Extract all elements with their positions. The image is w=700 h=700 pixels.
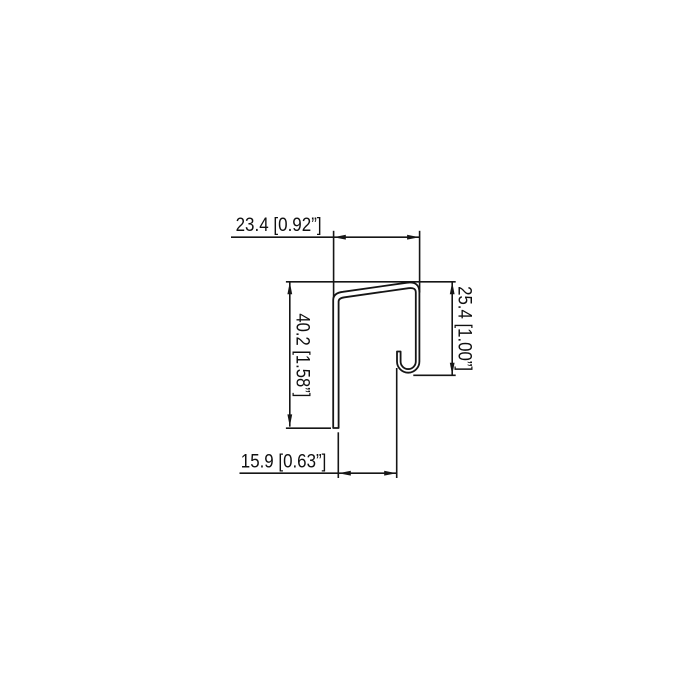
- svg-text:40.2 [1.58”]: 40.2 [1.58”]: [292, 313, 313, 397]
- svg-text:25.4 [1.00”]: 25.4 [1.00”]: [454, 286, 475, 371]
- svg-text:23.4 [0.92”]: 23.4 [0.92”]: [236, 215, 322, 236]
- svg-text:15.9 [0.63”]: 15.9 [0.63”]: [241, 451, 326, 472]
